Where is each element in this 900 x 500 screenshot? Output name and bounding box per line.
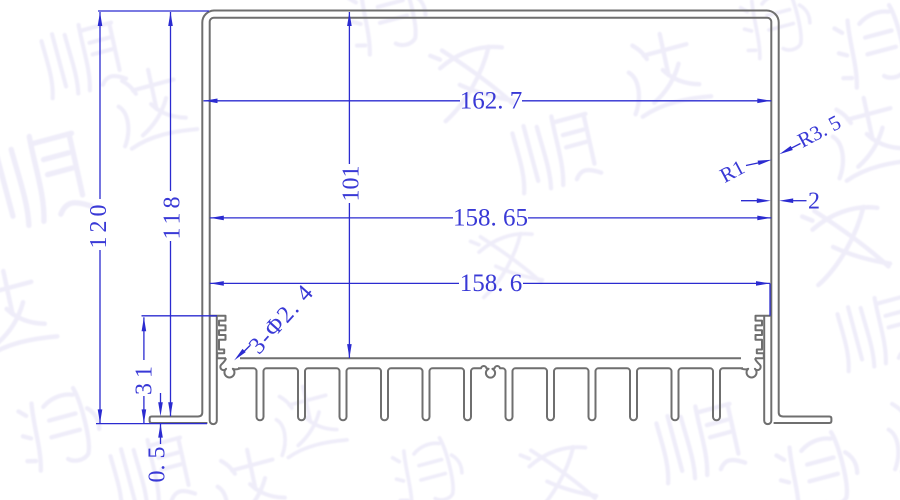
svg-text:158. 65: 158. 65 [453,205,528,232]
svg-text:2: 2 [808,189,820,215]
svg-text:158. 6: 158. 6 [460,270,523,297]
svg-text:118: 118 [160,192,186,239]
svg-text:101: 101 [339,166,365,202]
svg-text:120: 120 [86,201,112,249]
svg-text:0. 5: 0. 5 [145,447,171,483]
svg-text:162. 7: 162. 7 [460,88,523,115]
svg-text:31: 31 [132,361,158,395]
